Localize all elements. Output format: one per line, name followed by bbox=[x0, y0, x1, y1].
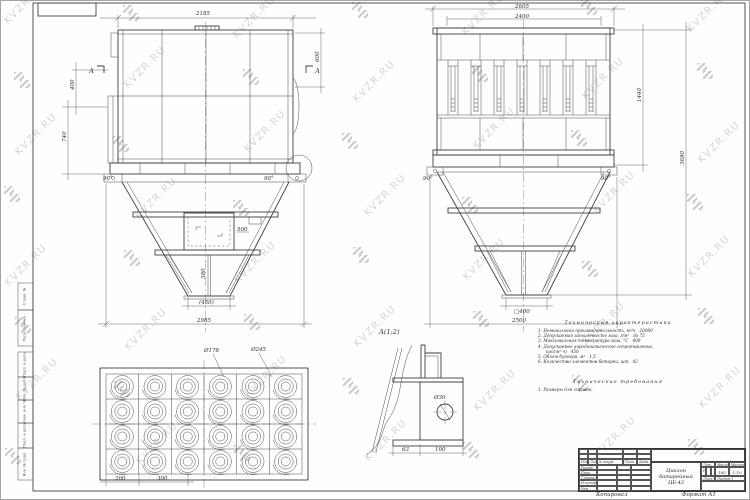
dim-side-top-inner: 2400 bbox=[514, 14, 529, 20]
tb-role-cell: Утв. bbox=[579, 486, 597, 491]
dim-side-outlet: □400 bbox=[514, 309, 530, 315]
dim-grid-outer-dia: Ø245 bbox=[250, 346, 267, 353]
tb-date-cell bbox=[631, 486, 651, 491]
dim-side-angle-left: 90° bbox=[423, 176, 433, 182]
sheet-frame bbox=[1, 1, 750, 500]
dim-front-left-lower: 740 bbox=[62, 131, 68, 142]
margin-stamp-label: Справ. № bbox=[23, 287, 27, 305]
dim-grid-pitch-y: 300 bbox=[157, 476, 168, 482]
format-label: Формат А1 bbox=[682, 492, 716, 498]
dim-detail-offset: 63 bbox=[402, 447, 409, 453]
dim-side-angle-right: 90° bbox=[601, 176, 611, 182]
title-block-docnum-cell bbox=[651, 449, 745, 462]
margin-stamp-label: Взам. инв. № bbox=[23, 399, 27, 424]
tech-reqs-line: 1. Размеры для справок. bbox=[538, 387, 698, 392]
dim-detail-width: 100 bbox=[435, 447, 446, 453]
dim-front-left-upper: 400 bbox=[70, 79, 76, 91]
dim-side-right-total: 3680 bbox=[680, 151, 686, 165]
dim-front-angle-left: 90° bbox=[103, 176, 113, 182]
margin-stamp-label: Инв. № подл. bbox=[23, 452, 27, 477]
drawing-title-line3: ЦБ-42 bbox=[668, 480, 684, 486]
detail-a-callout-circle bbox=[286, 155, 312, 181]
section-label-left: А bbox=[88, 67, 94, 75]
cyclone-elements bbox=[110, 376, 297, 475]
drawing-svg: Справ. №Перв. примен.Подп. и датаИнв. № … bbox=[0, 0, 750, 500]
dim-front-hatch: 500 bbox=[237, 227, 248, 233]
dim-front-outlet: (450) bbox=[199, 299, 214, 306]
side-view: 2605 2400 1440 3680 90° 90° □400 2500 bbox=[423, 4, 692, 332]
tech-reqs-title: Технические требования bbox=[538, 379, 698, 385]
grid-view: Ø178 Ø245 200 300 bbox=[92, 346, 316, 488]
tech-reqs-lines: 1. Размеры для справок. bbox=[538, 387, 698, 392]
tech-chars-line: 6. Количество элементов батареи, шт 42 bbox=[538, 359, 698, 364]
tb-sign-cell bbox=[617, 486, 631, 491]
dim-grid-pitch-x: 200 bbox=[114, 476, 126, 482]
copied-label: Копировал bbox=[596, 492, 627, 498]
dim-front-inlet-height: 600 bbox=[315, 51, 321, 62]
tb-fam-cell bbox=[597, 486, 617, 491]
front-view: 2185 600 400 740 90° 90° 500 380 (450) 2… bbox=[62, 11, 325, 332]
technical-requirements: Технические требования 1. Размеры для сп… bbox=[538, 379, 698, 392]
margin-stamp-label: Перв. примен. bbox=[23, 315, 27, 342]
drawing-title: Циклон батарейный ЦБ-42 bbox=[651, 462, 701, 491]
title-block: Изм.Лист№ докум.Подп.ДатаРазраб.Пров.Т.к… bbox=[579, 449, 745, 491]
margin-stamp-label: Инв. № дубл. bbox=[23, 376, 27, 401]
margin-stamp-label: Подп. и дата bbox=[23, 352, 27, 376]
dim-front-angle-right: 90° bbox=[264, 176, 274, 182]
tech-chars-lines: 1. Номинальная производительность, м³/ч … bbox=[538, 328, 698, 364]
dim-front-bottom: 2985 bbox=[196, 318, 211, 324]
dim-side-bottom: 2500 bbox=[511, 318, 526, 324]
tech-chars-title: Техническая характеристика bbox=[538, 320, 698, 326]
dim-side-right-body: 1440 bbox=[637, 88, 643, 102]
left-margin-stamps: Справ. №Перв. примен.Подп. и датаИнв. № … bbox=[18, 283, 33, 480]
scale-value: 1:10 bbox=[729, 467, 745, 476]
dim-detail-hole: Ø30 bbox=[433, 394, 446, 401]
org-cell bbox=[701, 481, 745, 491]
section-label-right: А bbox=[314, 67, 320, 75]
technical-characteristics: Техническая характеристика 1. Номинальна… bbox=[538, 320, 698, 364]
cyclone-tubes bbox=[448, 60, 596, 115]
margin-stamp-label: Подп. и дата bbox=[23, 423, 27, 447]
detail-title: А(1:2) bbox=[378, 328, 400, 336]
dim-front-rib: 380 bbox=[201, 268, 207, 279]
dim-front-top: 2185 bbox=[195, 11, 210, 17]
detail-view: А(1:2) Ø30 63 100 bbox=[366, 328, 467, 456]
dim-grid-inner-dia: Ø178 bbox=[203, 347, 220, 354]
dim-side-top-outer: 2605 bbox=[514, 4, 529, 10]
drawing-sheet: KVZR.RUKVZR.RUKVZR.RUKVZR.RUKVZR.RUKVZR.… bbox=[0, 0, 750, 500]
mass-value: 185 bbox=[715, 467, 729, 476]
